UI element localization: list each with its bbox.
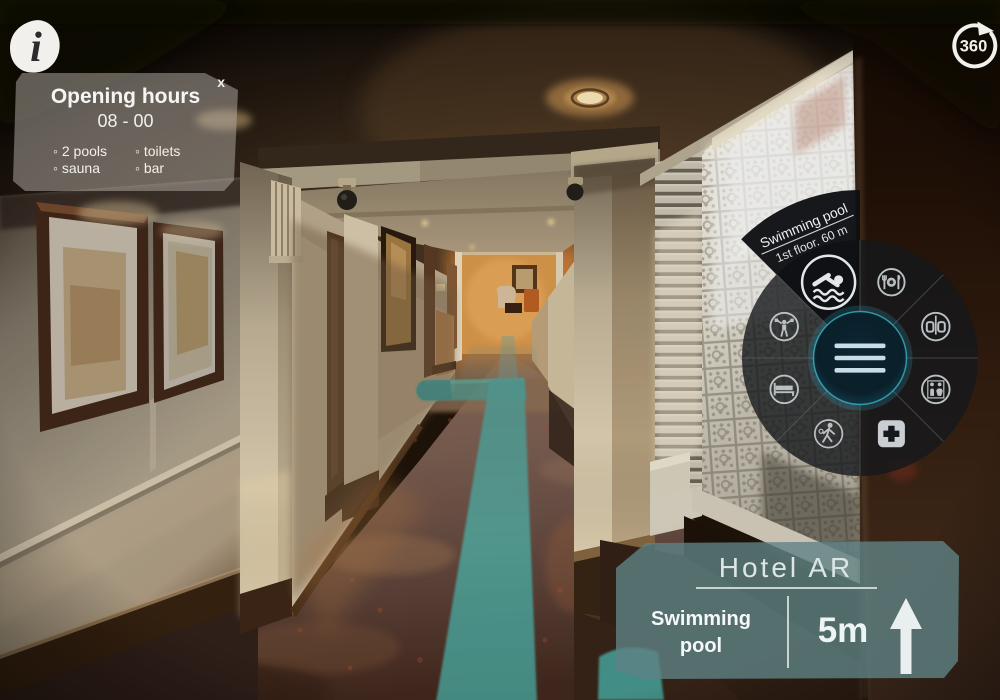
svg-text:360: 360 [960,38,988,56]
svg-text:i: i [30,25,42,71]
